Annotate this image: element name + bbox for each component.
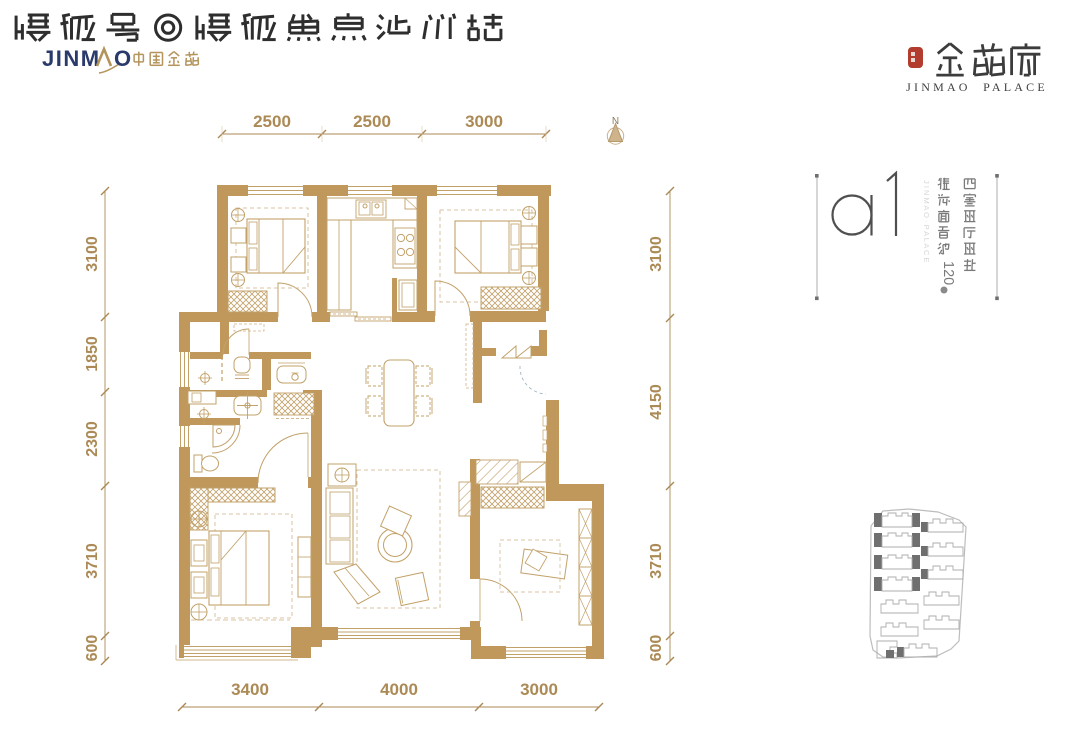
svg-text:3400: 3400 xyxy=(231,680,269,699)
svg-text:600: 600 xyxy=(648,635,665,662)
svg-text:1850: 1850 xyxy=(84,336,101,372)
svg-text:2500: 2500 xyxy=(253,112,291,131)
svg-text:J I N M A O · P A L A C E: J I N M A O · P A L A C E xyxy=(922,180,931,263)
svg-text:3100: 3100 xyxy=(648,236,665,272)
svg-text:JINM: JINM xyxy=(42,46,101,71)
svg-text:JINMAO PALACE: JINMAO PALACE xyxy=(906,80,1048,94)
svg-text:3000: 3000 xyxy=(520,680,558,699)
svg-text:4000: 4000 xyxy=(380,680,418,699)
svg-text:3710: 3710 xyxy=(84,543,101,579)
svg-text:120: 120 xyxy=(940,261,956,285)
svg-text:O: O xyxy=(114,46,131,71)
svg-text:4150: 4150 xyxy=(648,384,665,420)
svg-text:3100: 3100 xyxy=(84,236,101,272)
svg-text:600: 600 xyxy=(84,635,101,662)
svg-text:3710: 3710 xyxy=(648,543,665,579)
svg-text:2300: 2300 xyxy=(84,421,101,457)
svg-text:3000: 3000 xyxy=(465,112,503,131)
svg-text:2500: 2500 xyxy=(353,112,391,131)
